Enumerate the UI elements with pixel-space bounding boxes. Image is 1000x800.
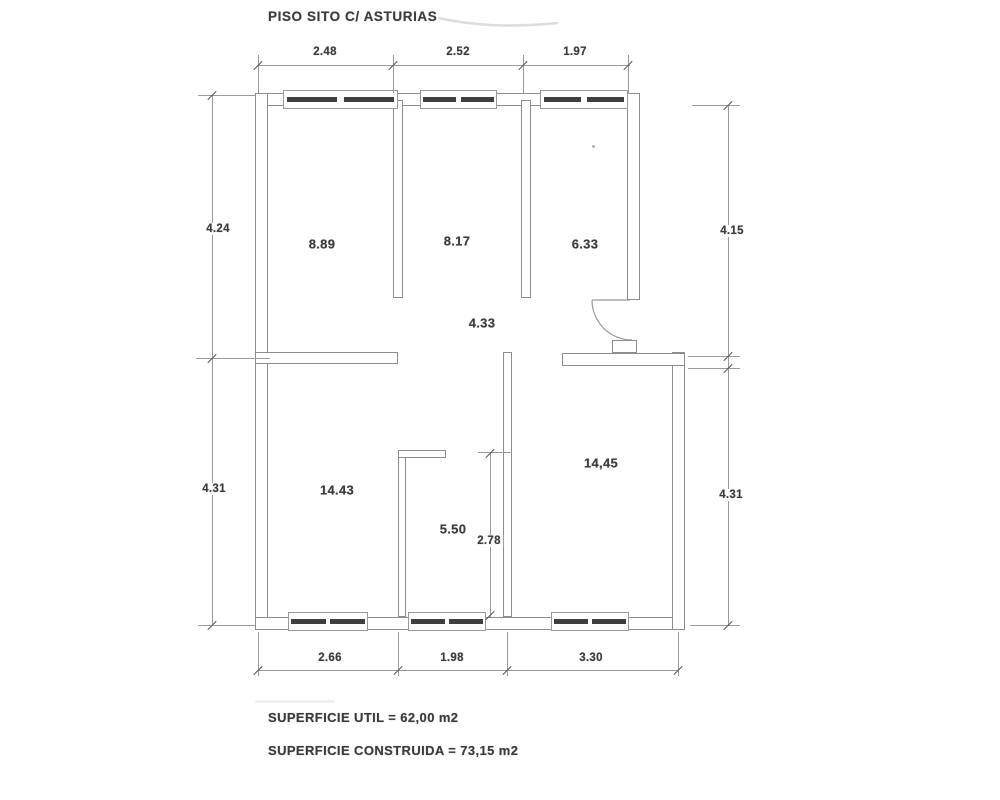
- wall-right-upper: [627, 93, 640, 300]
- dim-label-left-lower: 4.31: [200, 483, 228, 495]
- dim-label-bottom-2: 1.98: [438, 652, 466, 664]
- wall-room1-room2: [393, 100, 403, 298]
- dim-label-top-3: 1.97: [561, 46, 589, 58]
- window-bottom-3: [551, 612, 629, 631]
- room-area-label-2: 8.17: [442, 234, 473, 249]
- room-area-label-hall: 4.33: [467, 316, 498, 331]
- window-glass-icon: [344, 97, 394, 102]
- window-glass-icon: [592, 619, 625, 624]
- dim-label-right-upper: 4.15: [718, 225, 746, 237]
- window-glass-icon: [449, 619, 482, 624]
- window-glass-icon: [287, 97, 337, 102]
- window-glass-icon: [330, 619, 364, 624]
- dim-line-top: [258, 65, 630, 66]
- dim-line-left: [212, 95, 213, 625]
- window-bottom-1: [288, 612, 368, 631]
- door-swing-arc: [0, 0, 1000, 800]
- wall-room2-room3: [521, 100, 531, 298]
- wall-door-pier: [612, 340, 637, 353]
- dim-label-top-1: 2.48: [311, 46, 339, 58]
- wall-middle-left: [255, 352, 398, 364]
- surface-util-text: SUPERFICIE UTIL = 62,00 m2: [268, 710, 458, 725]
- surface-construida-text: SUPERFICIE CONSTRUIDA = 73,15 m2: [268, 743, 518, 758]
- ext-line: [690, 625, 740, 626]
- wall-room5-top: [398, 450, 446, 458]
- scan-smudge: [255, 700, 335, 703]
- scan-dot: [592, 145, 595, 148]
- wall-right-lower: [672, 352, 685, 630]
- window-top-2: [420, 90, 497, 109]
- ext-line: [198, 95, 255, 96]
- ext-line: [198, 625, 255, 626]
- ext-line: [393, 55, 394, 93]
- window-top-3: [540, 90, 628, 109]
- dim-label-bottom-3: 3.30: [577, 652, 605, 664]
- window-glass-icon: [554, 619, 587, 624]
- window-glass-icon: [411, 619, 444, 624]
- floor-plan-scan: PISO SITO C/ ASTURIAS: [0, 0, 1000, 800]
- window-glass-icon: [423, 97, 456, 102]
- ext-line: [196, 358, 270, 359]
- window-glass-icon: [291, 619, 325, 624]
- ext-line: [258, 55, 259, 93]
- room-area-label-5: 5.50: [438, 522, 469, 537]
- window-glass-icon: [544, 97, 582, 102]
- room-area-label-6: 14,45: [582, 456, 620, 471]
- ext-line: [628, 55, 629, 93]
- ext-line: [688, 356, 740, 357]
- ext-line: [478, 452, 512, 453]
- plan-title: PISO SITO C/ ASTURIAS: [268, 9, 437, 24]
- dim-line-bottom: [258, 670, 678, 671]
- window-top-1: [283, 90, 398, 109]
- dim-label-bottom-1: 2.66: [316, 652, 344, 664]
- ext-line: [523, 55, 524, 93]
- room-area-label-4: 14.43: [318, 483, 356, 498]
- dim-label-top-2: 2.52: [444, 46, 472, 58]
- wall-middle-right: [562, 353, 685, 366]
- ext-line: [692, 105, 740, 106]
- window-glass-icon: [587, 97, 625, 102]
- window-bottom-2: [408, 612, 486, 631]
- wall-room6-left: [503, 352, 512, 617]
- room-area-label-1: 8.89: [307, 237, 338, 252]
- wall-room5-left: [398, 450, 406, 617]
- room-area-label-3: 6.33: [570, 237, 601, 252]
- dim-label-right-lower: 4.31: [717, 489, 745, 501]
- window-glass-icon: [461, 97, 494, 102]
- dim-label-room5-depth: 2.78: [475, 535, 503, 547]
- dim-label-left-upper: 4.24: [204, 223, 232, 235]
- ext-line: [688, 368, 740, 369]
